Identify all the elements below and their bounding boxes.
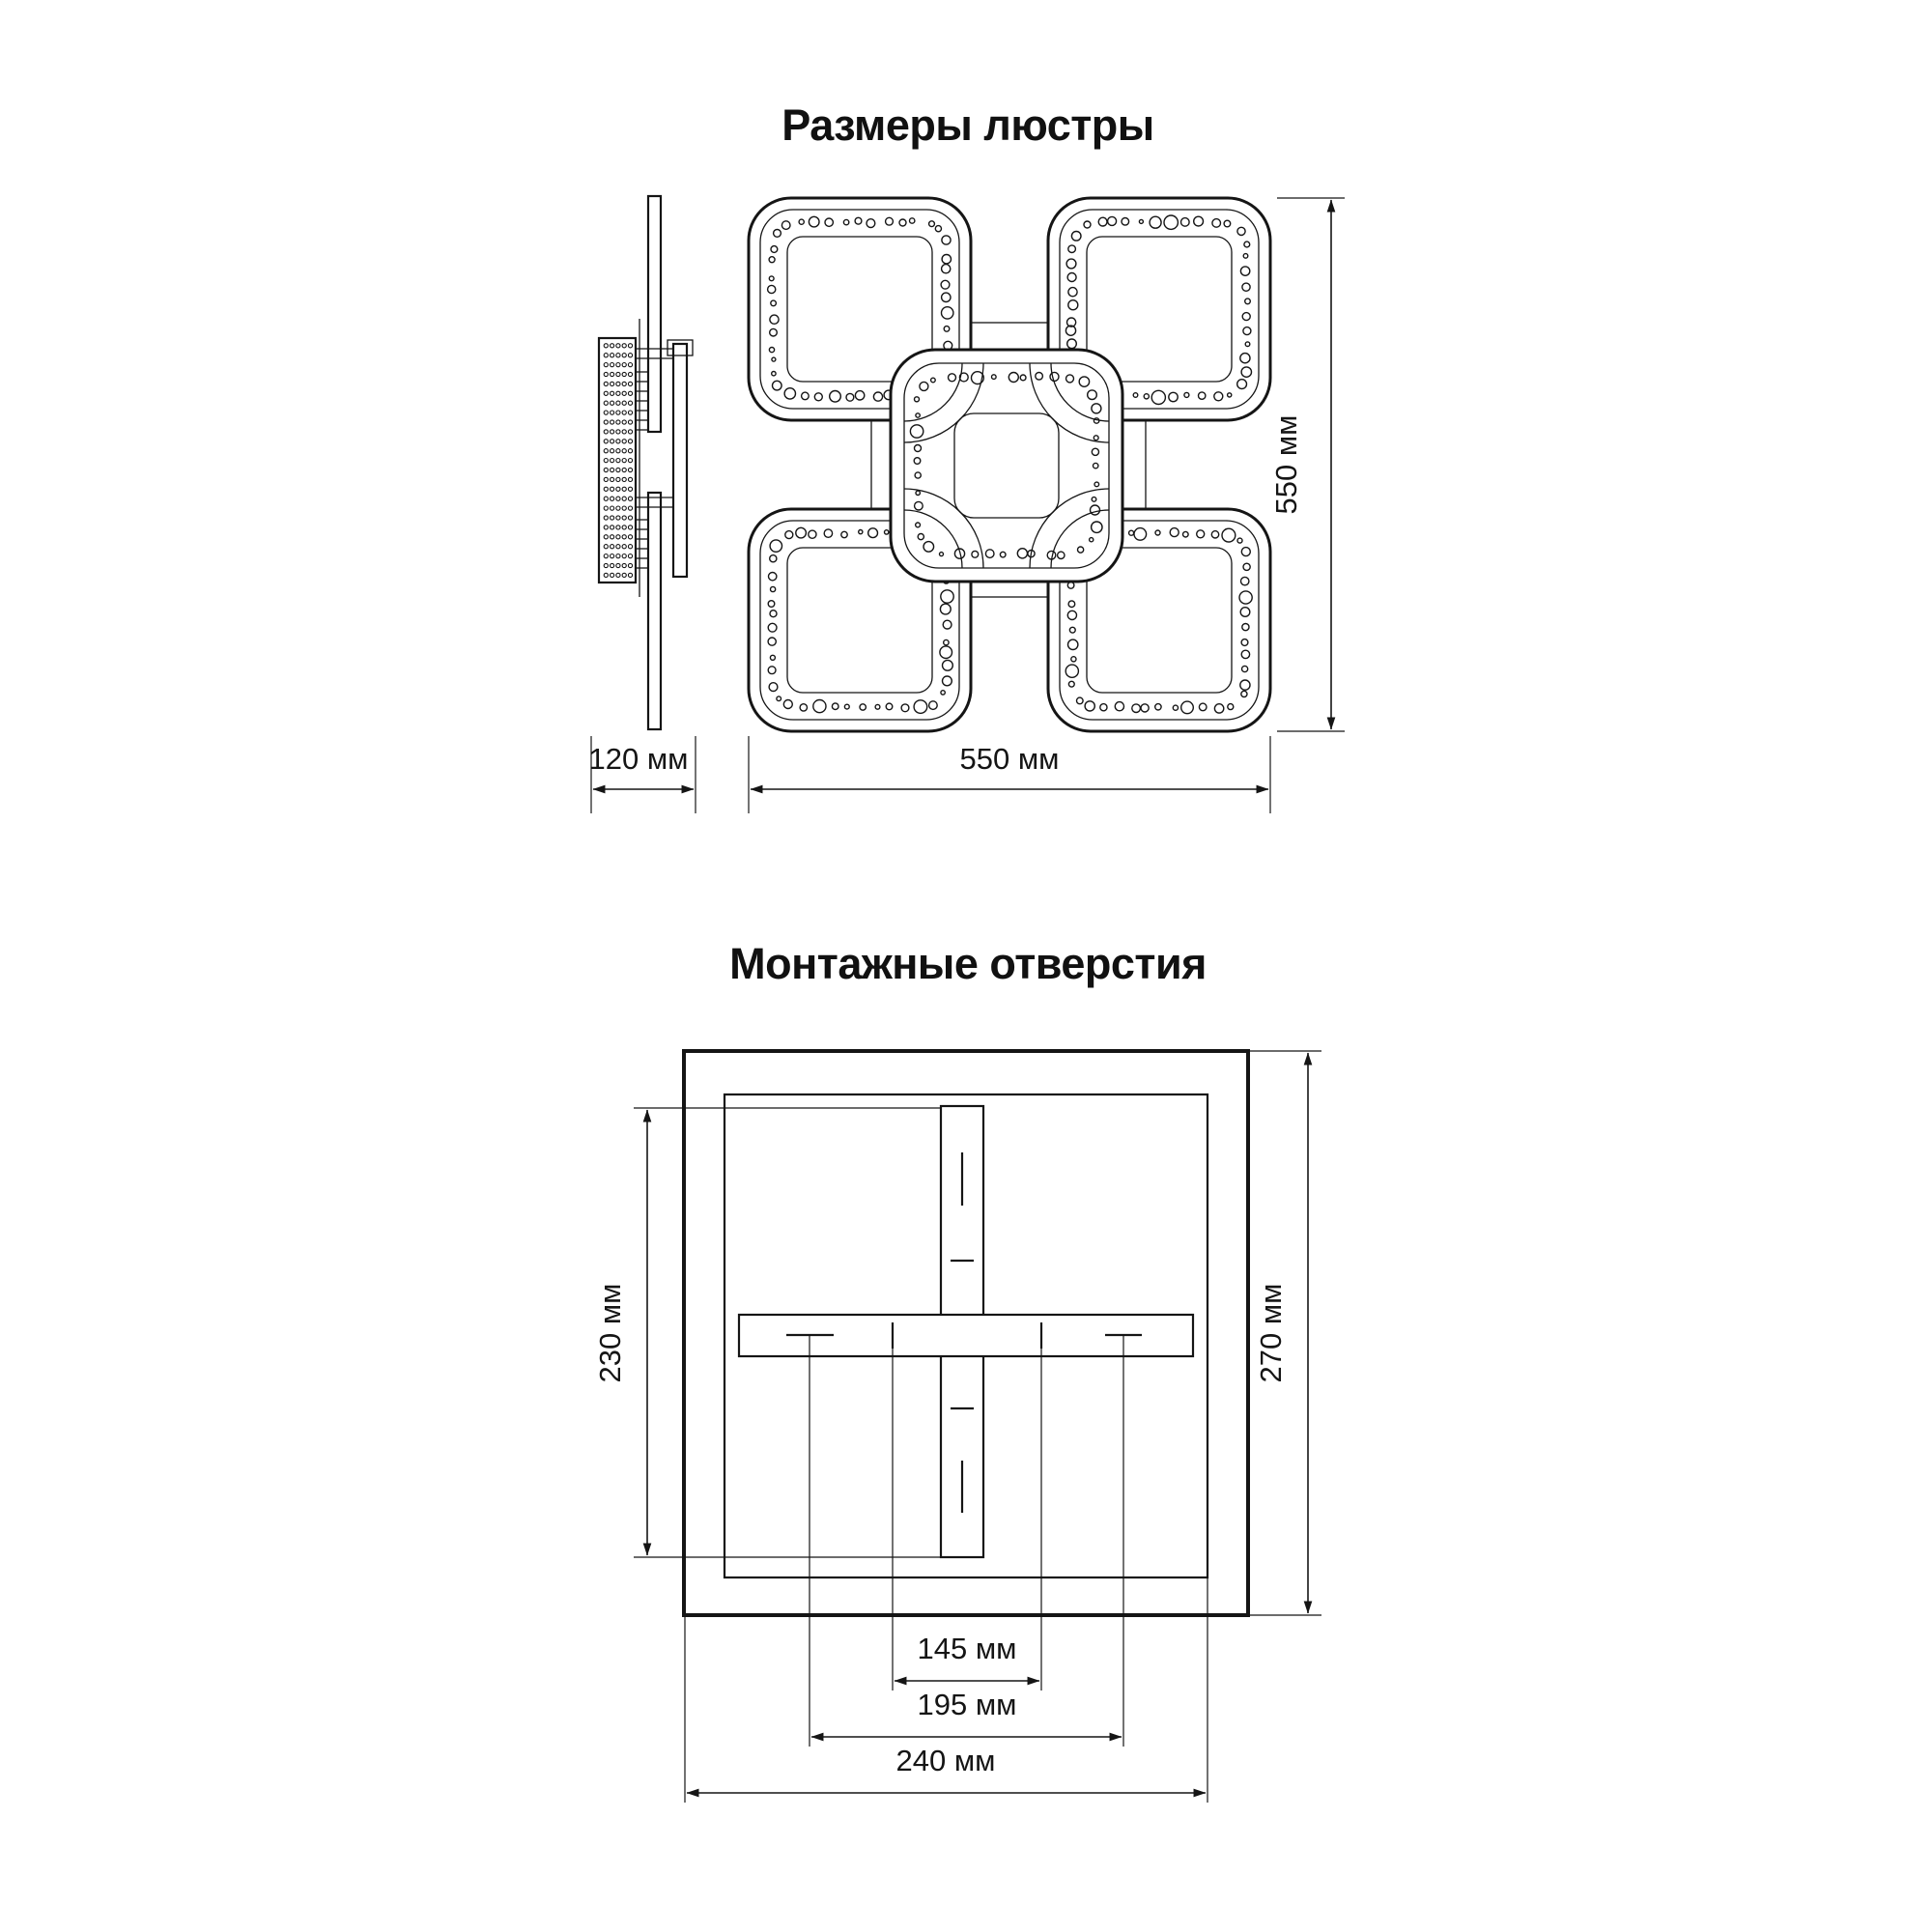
depth-dimension: 120 мм [589,736,696,813]
bracket-length-dimension-label: 230 мм [593,1284,627,1383]
center-ring-mount-cap [668,340,693,355]
width-dimension-label: 550 мм [960,742,1060,776]
width-dimension: 550 мм [749,736,1270,813]
hole-spacing-145-label: 145 мм [918,1632,1017,1665]
hole-spacing-dimension-145: 145 мм [895,1632,1039,1681]
section-title-chandelier: Размеры люстры [781,100,1153,150]
ring-panel-edge-upper [648,196,661,432]
center-ring-edge [673,344,687,577]
technical-drawing: Размеры люстры [0,0,1932,1932]
hole-spacing-195-label: 195 мм [918,1688,1017,1721]
horizontal-bracket [739,1315,1193,1356]
center-ring [891,350,1122,582]
chandelier-top-view [749,198,1270,731]
hole-spacing-240-label: 240 мм [896,1744,996,1777]
ring-panel-edge-lower [648,493,661,729]
mount-base-texture [604,344,632,578]
plate-size-dimension-label: 270 мм [1254,1284,1288,1383]
section-title-mounting: Монтажные отверстия [729,939,1207,988]
mounting-holes-section: Монтажные отверстия [593,939,1321,1803]
hole-spacing-dimension-240: 240 мм [687,1744,1206,1793]
chandelier-side-view [599,196,693,729]
mounting-plate-diagram: 230 мм 270 мм 145 мм 195 мм 240 мм [593,1051,1321,1803]
height-dimension: 550 мм [1269,198,1345,731]
depth-dimension-label: 120 мм [589,742,689,776]
plate-size-dimension: 270 мм [1248,1051,1321,1615]
height-dimension-label: 550 мм [1269,415,1303,515]
chandelier-dimensions-section: Размеры люстры [589,100,1345,813]
mount-arms-lower [636,497,673,568]
mount-arms-upper [636,349,673,430]
hole-spacing-dimension-195: 195 мм [811,1688,1122,1737]
